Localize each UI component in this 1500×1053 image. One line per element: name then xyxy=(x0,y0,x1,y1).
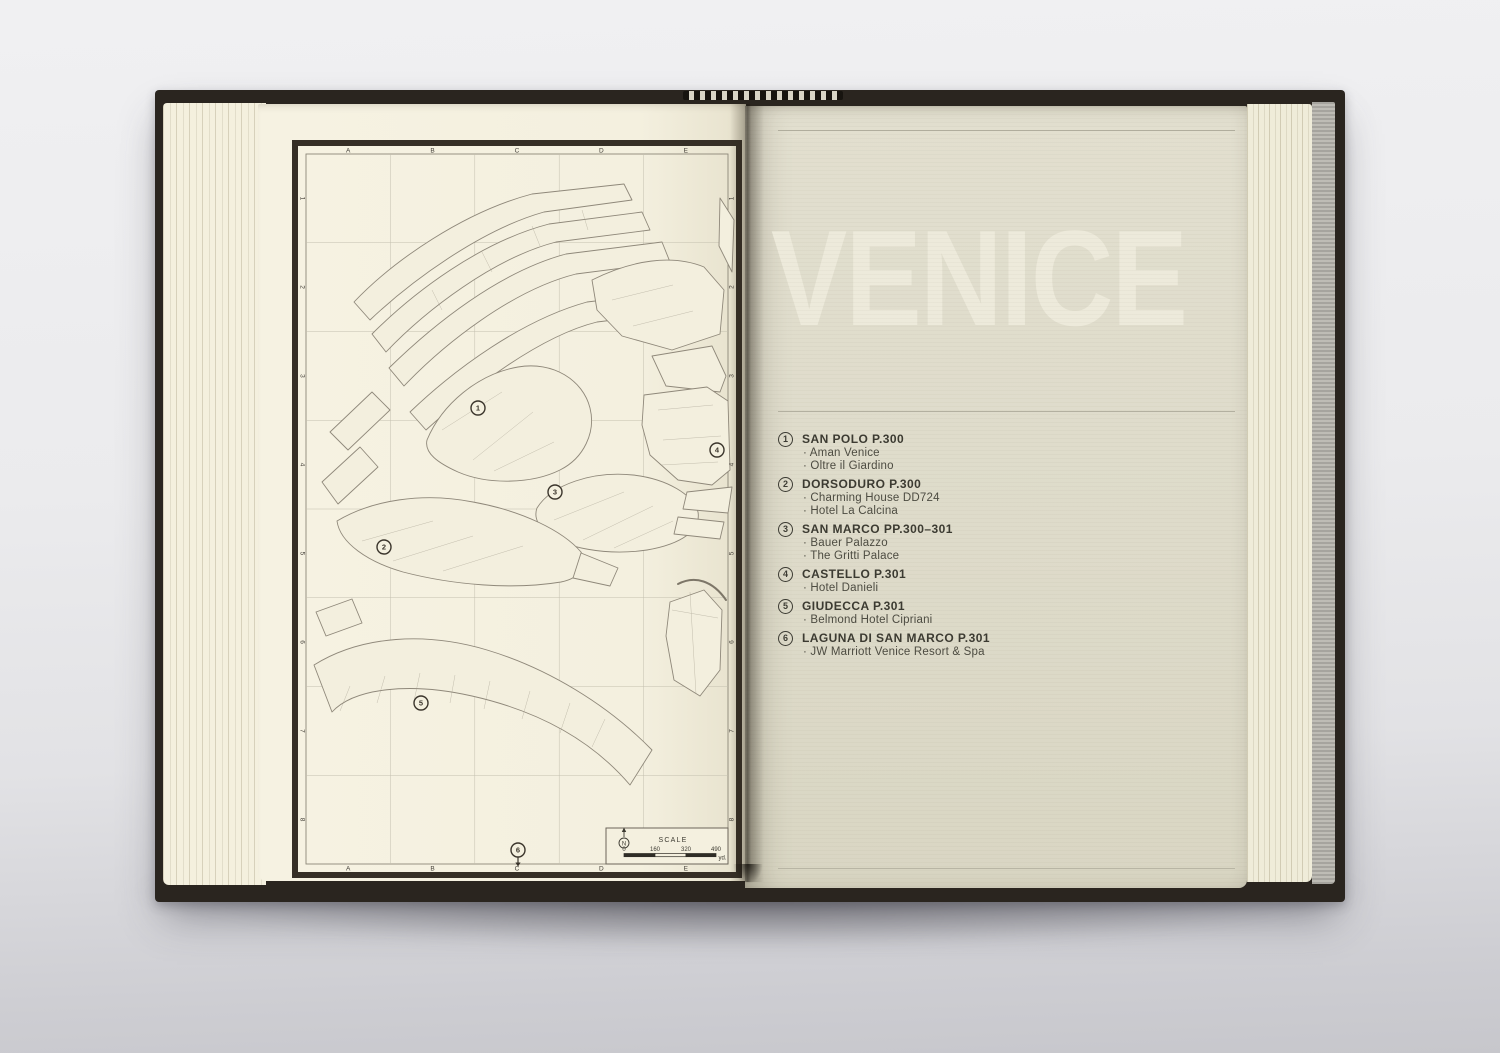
gutter-foot-shadow xyxy=(733,864,763,884)
city-block-outline xyxy=(322,447,378,504)
divider-rule xyxy=(778,411,1235,412)
chapter-title: VENICE xyxy=(771,210,1186,346)
hotel-name: · JW Marriott Venice Resort & Spa xyxy=(803,646,1208,659)
scale-bar-segment xyxy=(686,854,716,857)
grid-column-label: C xyxy=(515,866,520,873)
gutter-shadow xyxy=(730,104,764,882)
book-fore-edge xyxy=(1312,102,1335,884)
city-block-outline xyxy=(316,599,362,636)
left-page: AABBCCDDEE1122334455667788 N SCALE 01603… xyxy=(258,104,746,881)
district-title: CASTELLO P.301 xyxy=(802,567,906,581)
grid-column-label: C xyxy=(515,148,520,155)
district-title: SAN POLO P.300 xyxy=(802,432,904,446)
map-marker-number: 1 xyxy=(476,404,480,413)
district-number-badge: 2 xyxy=(778,477,793,492)
grid-column-label: D xyxy=(599,148,604,155)
district-heading: 1 SAN POLO P.300 xyxy=(778,431,1208,447)
venice-landmass xyxy=(314,184,734,785)
district-title: LAGUNA DI SAN MARCO P.301 xyxy=(802,631,990,645)
scale-unit: yd. xyxy=(719,856,727,862)
left-page-edges xyxy=(163,103,266,885)
photo-backdrop: AABBCCDDEE1122334455667788 N SCALE 01603… xyxy=(0,0,1500,1053)
right-page-edges xyxy=(1247,104,1312,882)
map-marker: 4 xyxy=(710,443,724,457)
book-cover: AABBCCDDEE1122334455667788 N SCALE 01603… xyxy=(155,90,1345,902)
grid-column-label: A xyxy=(346,866,351,873)
grid-row-label: 2 xyxy=(298,285,305,289)
district-heading: 4 CASTELLO P.301 xyxy=(778,566,1208,582)
district-title: GIUDECCA P.301 xyxy=(802,599,905,613)
district-number-badge: 4 xyxy=(778,567,793,582)
grid-row-label: 1 xyxy=(298,197,305,201)
grid-column-label: E xyxy=(684,866,689,873)
city-block-outline xyxy=(592,260,724,350)
map-marker: 2 xyxy=(377,540,391,554)
district-heading: 3 SAN MARCO PP.300–301 xyxy=(778,521,1208,537)
district-title: SAN MARCO PP.300–301 xyxy=(802,522,953,536)
scale-bar-segment xyxy=(624,854,655,857)
hotel-name: · The Gritti Palace xyxy=(803,550,1208,563)
hotel-name: · Hotel La Calcina xyxy=(803,505,1208,518)
district-list: 1 SAN POLO P.300 · Aman Venice· Oltre il… xyxy=(778,431,1208,662)
scale-title: SCALE xyxy=(659,837,688,844)
district-item: 5 GIUDECCA P.301 · Belmond Hotel Ciprian… xyxy=(778,598,1208,627)
scale-tick: 320 xyxy=(681,847,692,853)
map-marker-number: 2 xyxy=(382,543,386,552)
grid-row-label: 7 xyxy=(298,729,305,733)
right-page: VENICE 1 SAN POLO P.300 · Aman Venice· O… xyxy=(745,106,1247,888)
headband xyxy=(683,91,843,100)
hotel-name: · Charming House DD724 xyxy=(803,492,1208,505)
city-block-outline xyxy=(314,639,652,785)
venice-map: AABBCCDDEE1122334455667788 N SCALE 01603… xyxy=(292,140,742,878)
scale-tick: 160 xyxy=(650,847,661,853)
district-item: 3 SAN MARCO PP.300–301 · Bauer Palazzo· … xyxy=(778,521,1208,563)
grid-column-label: A xyxy=(346,148,351,155)
map-marker: 6 xyxy=(511,843,525,867)
district-item: 4 CASTELLO P.301 · Hotel Danieli xyxy=(778,566,1208,595)
map-scale-box: N SCALE 0160320490 yd. xyxy=(606,828,728,865)
map-marker: 3 xyxy=(548,485,562,499)
district-number-badge: 3 xyxy=(778,522,793,537)
hotel-name: · Bauer Palazzo xyxy=(803,537,1208,550)
city-block-outline xyxy=(666,590,722,696)
grid-row-label: 3 xyxy=(298,374,305,378)
city-block-outline xyxy=(642,387,730,485)
scale-tick: 490 xyxy=(711,847,722,853)
hotel-name: · Belmond Hotel Cipriani xyxy=(803,614,1208,627)
map-marker: 1 xyxy=(471,401,485,415)
district-heading: 2 DORSODURO P.300 xyxy=(778,476,1208,492)
district-number-badge: 1 xyxy=(778,432,793,447)
district-item: 1 SAN POLO P.300 · Aman Venice· Oltre il… xyxy=(778,431,1208,473)
map-marker-number: 6 xyxy=(516,846,520,855)
grid-column-label: E xyxy=(684,148,689,155)
hotel-name: · Hotel Danieli xyxy=(803,582,1208,595)
top-rule xyxy=(778,130,1235,131)
district-heading: 5 GIUDECCA P.301 xyxy=(778,598,1208,614)
grid-row-label: 5 xyxy=(298,552,305,556)
hotel-name: · Aman Venice xyxy=(803,447,1208,460)
city-block-outline xyxy=(330,392,390,450)
map-marker-number: 3 xyxy=(553,488,557,497)
district-item: 6 LAGUNA DI SAN MARCO P.301 · JW Marriot… xyxy=(778,630,1208,659)
district-heading: 6 LAGUNA DI SAN MARCO P.301 xyxy=(778,630,1208,646)
city-block-outline xyxy=(652,346,726,392)
grid-row-label: 4 xyxy=(298,463,305,467)
district-number-badge: 5 xyxy=(778,599,793,614)
map-marker: 5 xyxy=(414,696,428,710)
hotel-name: · Oltre il Giardino xyxy=(803,460,1208,473)
map-marker-number: 5 xyxy=(419,699,423,708)
grid-column-label: B xyxy=(430,866,434,873)
grid-column-label: D xyxy=(599,866,604,873)
city-block-outline xyxy=(573,553,618,586)
district-number-badge: 6 xyxy=(778,631,793,646)
scale-bar-segment xyxy=(655,854,686,857)
scale-bar xyxy=(624,854,716,857)
district-title: DORSODURO P.300 xyxy=(802,477,921,491)
city-block-outline xyxy=(683,487,732,513)
grid-row-label: 6 xyxy=(298,640,305,644)
district-item: 2 DORSODURO P.300 · Charming House DD724… xyxy=(778,476,1208,518)
grid-column-label: B xyxy=(430,148,434,155)
bottom-rule xyxy=(778,868,1235,869)
grid-row-label: 8 xyxy=(298,818,305,822)
